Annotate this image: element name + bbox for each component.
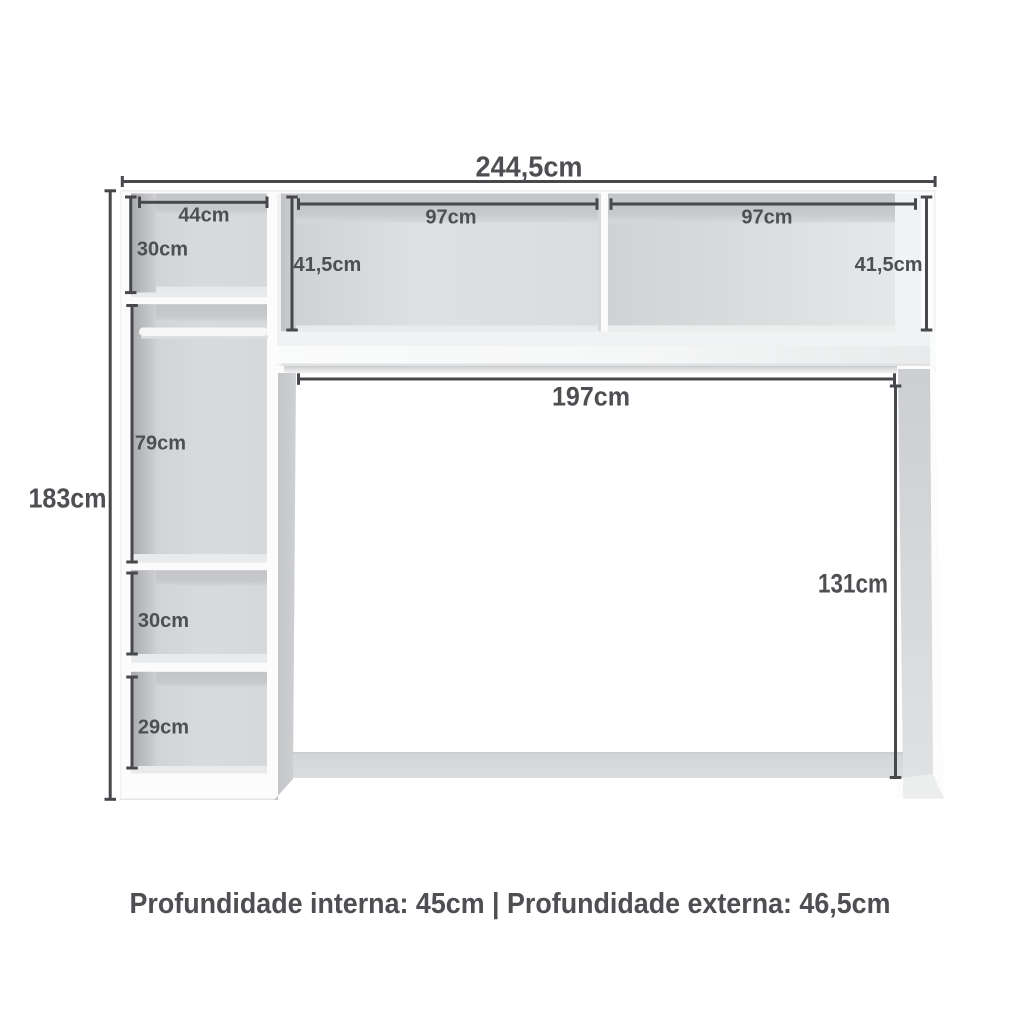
svg-text:97cm: 97cm [425,207,476,229]
svg-text:41,5cm: 41,5cm [855,254,923,276]
svg-text:197cm: 197cm [552,382,630,412]
svg-text:244,5cm: 244,5cm [476,152,583,184]
svg-text:Profundidade interna: 45cm | P: Profundidade interna: 45cm | Profundidad… [130,888,891,920]
svg-text:97cm: 97cm [741,207,792,229]
svg-text:183cm: 183cm [29,483,107,514]
svg-text:79cm: 79cm [135,433,186,455]
svg-text:29cm: 29cm [138,717,189,739]
svg-text:41,5cm: 41,5cm [294,254,362,276]
svg-text:44cm: 44cm [178,205,229,227]
svg-text:30cm: 30cm [137,239,188,261]
svg-text:131cm: 131cm [818,569,888,599]
svg-text:30cm: 30cm [138,610,189,632]
